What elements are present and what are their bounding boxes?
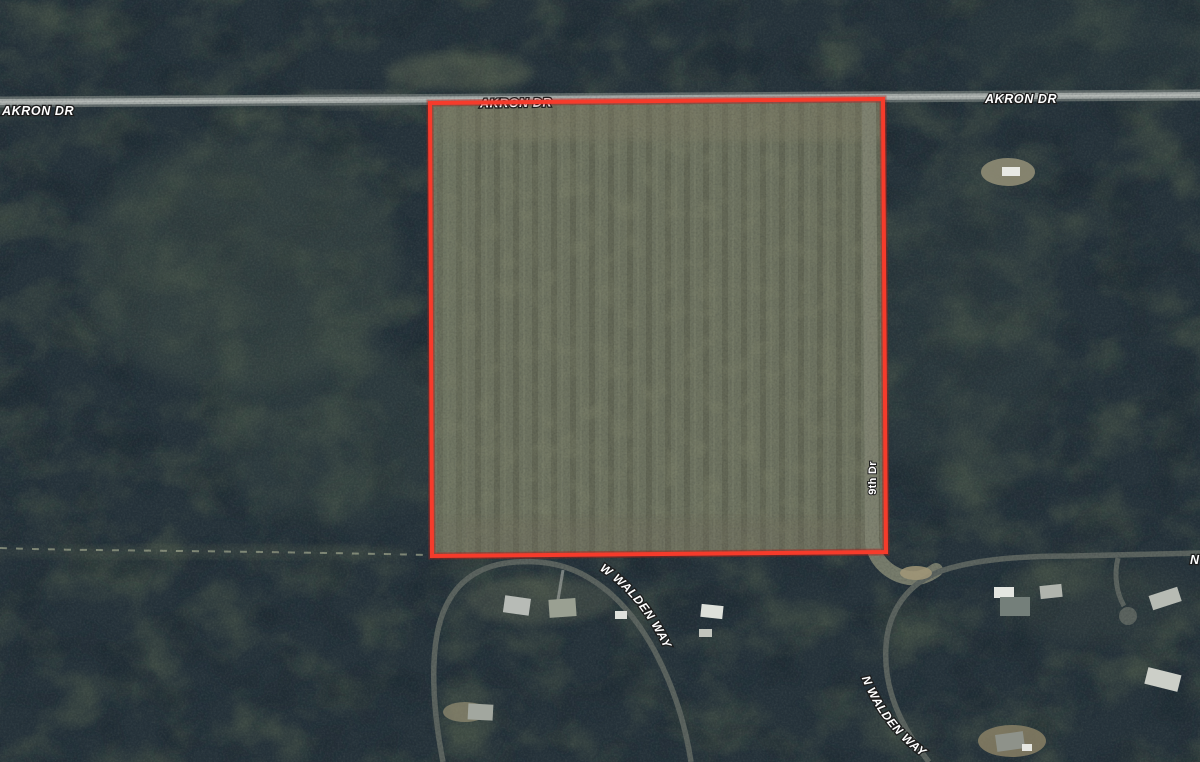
- road-label-9th-dr: 9th Dr: [867, 461, 879, 495]
- grain-dark: [0, 0, 1200, 762]
- map-viewport[interactable]: AKRON DR AKRON DR AKRON DR W WALDEN WAY …: [0, 0, 1200, 762]
- road-label-edge-partial: N: [1190, 553, 1200, 567]
- road-label-akron-right: AKRON DR: [984, 92, 1057, 106]
- satellite-imagery: AKRON DR AKRON DR AKRON DR W WALDEN WAY …: [0, 0, 1200, 762]
- road-label-akron-left: AKRON DR: [1, 104, 74, 118]
